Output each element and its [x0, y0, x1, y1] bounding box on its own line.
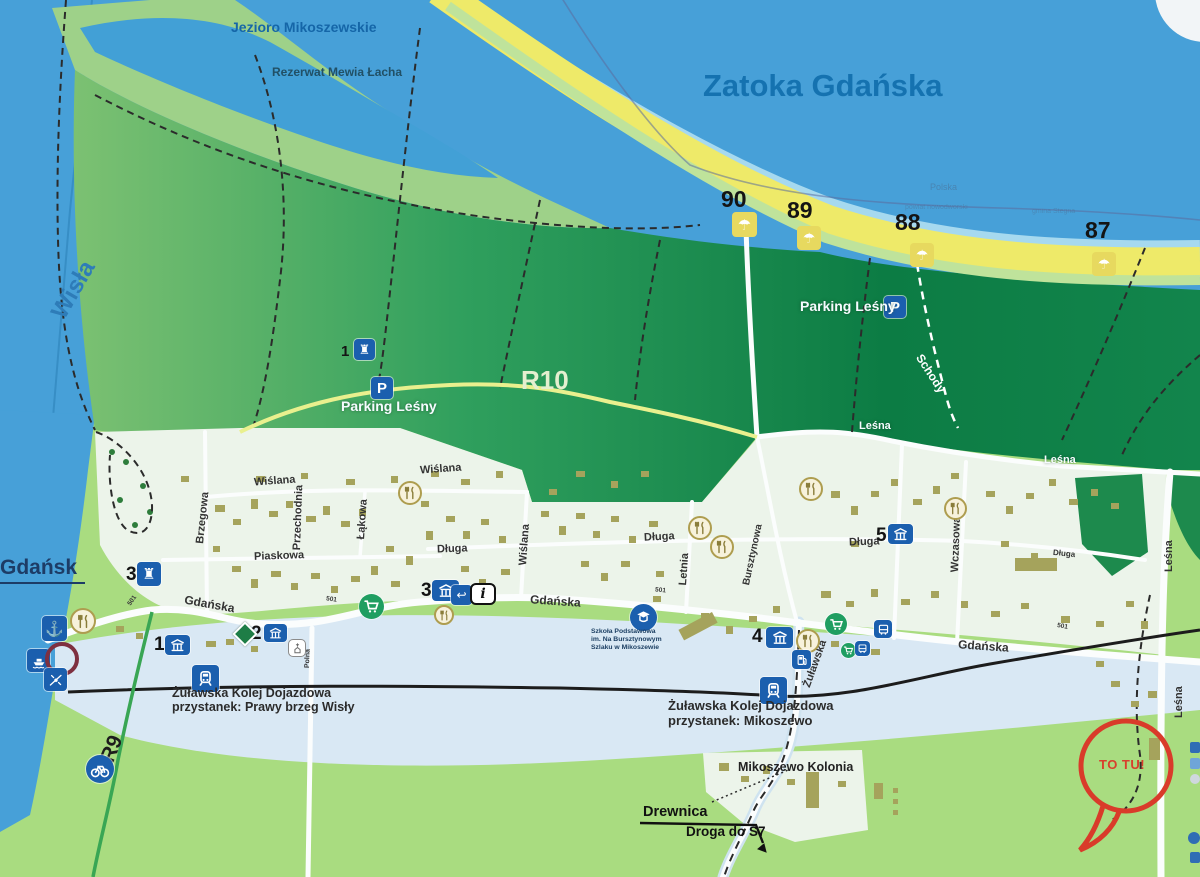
street-piaskowa: Piaskowa [254, 549, 305, 563]
lodging-icon [888, 524, 913, 544]
map-canvas [0, 0, 1200, 877]
road-501-badge: 501 [655, 586, 667, 595]
poi-number: 1 [341, 343, 349, 360]
road-501-badge: 501 [326, 595, 338, 604]
you-are-here-label: TO TU! [1099, 758, 1145, 773]
street-dluga: Długa [437, 542, 468, 556]
restaurant-icon [944, 497, 967, 520]
parking-forest-label: Parking Leśny [341, 398, 437, 414]
beach-umbrella-icon: ☂ [910, 243, 934, 267]
poi-number: 4 [752, 626, 763, 648]
droga-s7-label: Droga do S7 [686, 824, 766, 840]
beach-umbrella-icon: ☂ [797, 226, 821, 250]
boundary-country-label: Polska [930, 182, 957, 192]
rail-stop-caption: Żuławska Kolej Dojazdowa przystanek: Pra… [172, 686, 355, 715]
street-lesna: Leśna [859, 420, 891, 433]
restaurant-icon [710, 535, 734, 559]
restaurant-icon [70, 608, 96, 634]
bus-stop-icon [855, 641, 870, 656]
school-icon [630, 604, 657, 631]
poi-number: 3 [126, 564, 137, 586]
arrow-icon: ↩ [451, 585, 472, 605]
road-501-badge: 501 [1056, 622, 1068, 631]
street-lesna: Leśna [1044, 454, 1076, 467]
shop-icon [841, 643, 856, 658]
lodging-icon [165, 635, 190, 655]
rail-stop-line1: Żuławska Kolej Dojazdowa [668, 699, 833, 714]
tower-icon: ♜ [354, 339, 375, 360]
lodging-icon [766, 627, 793, 648]
reserve-label: Rezerwat Mewia Łacha [272, 66, 402, 80]
drewnica-label: Drewnica [643, 804, 707, 821]
cut-legend-icon [1190, 852, 1200, 863]
bicycle-icon [86, 755, 114, 783]
school-caption-line: Szlaku w Mikoszewie [591, 644, 662, 652]
street-letnia: Letnia [677, 553, 692, 586]
street-lesna: Leśna [1163, 540, 1176, 572]
church-icon [288, 639, 306, 657]
beach-entrance-87: 87 [1085, 217, 1111, 244]
kolonia-label: Mikoszewo Kolonia [738, 760, 853, 774]
restaurant-icon [688, 516, 712, 540]
school-caption-line: im. Na Bursztynowym [591, 636, 662, 644]
restaurant-icon [398, 481, 422, 505]
parking-icon: P [371, 377, 393, 399]
shop-icon [359, 594, 384, 619]
cut-legend-icon [1190, 742, 1200, 753]
street-przechodnia: Przechodnia [291, 485, 306, 551]
cut-legend-icon [1190, 758, 1200, 769]
restaurant-icon [799, 477, 823, 501]
shop-icon [825, 613, 847, 635]
rail-stop-line1: Żuławska Kolej Dojazdowa [172, 686, 355, 700]
lake-label: Jezioro Mikoszewskie [231, 19, 377, 35]
rail-stop-line2: przystanek: Mikoszewo [668, 714, 833, 729]
street-dluga: Długa [644, 530, 675, 544]
street-lesna: Leśna [1173, 686, 1186, 718]
fuel-station-icon [792, 650, 811, 669]
water-sports-icon [44, 668, 67, 691]
cut-legend-icon [1190, 774, 1200, 784]
bus-stop-icon [874, 620, 892, 638]
street-wczasowa: Wczasowa [949, 516, 964, 572]
beach-entrance-90: 90 [721, 186, 747, 213]
poi-number: 5 [876, 525, 887, 547]
school-caption: Szkoła Podstawowa im. Na Bursztynowym Sz… [591, 628, 662, 651]
rail-stop-caption: Żuławska Kolej Dojazdowa przystanek: Mik… [668, 699, 833, 729]
beach-umbrella-icon: ☂ [732, 212, 757, 237]
info-icon: i [470, 583, 496, 605]
gdansk-direction-label: Gdańsk [0, 556, 85, 584]
boundary-commune-label: gmina Stegna [1032, 208, 1075, 216]
poi-number: 3 [421, 580, 432, 602]
tower-icon: ♜ [137, 562, 161, 586]
restaurant-icon [434, 605, 454, 625]
anchor-icon: ⚓ [42, 616, 67, 641]
map-board: Zatoka Gdańska Wisła Jezioro Mikoszewski… [0, 0, 1200, 877]
beach-entrance-88: 88 [895, 209, 921, 236]
route-r10-label: R10 [521, 366, 569, 396]
poi-number: 1 [154, 634, 165, 656]
sea-label: Zatoka Gdańska [703, 68, 942, 104]
parking-forest-label: Parking Leśny [800, 298, 896, 314]
school-caption-line: Szkoła Podstawowa [591, 628, 662, 636]
beach-umbrella-icon: ☂ [1092, 252, 1116, 276]
lodging-icon [264, 624, 287, 642]
cut-legend-icon [1188, 832, 1200, 844]
rail-stop-line2: przystanek: Prawy brzeg Wisły [172, 700, 355, 714]
beach-entrance-89: 89 [787, 197, 813, 224]
